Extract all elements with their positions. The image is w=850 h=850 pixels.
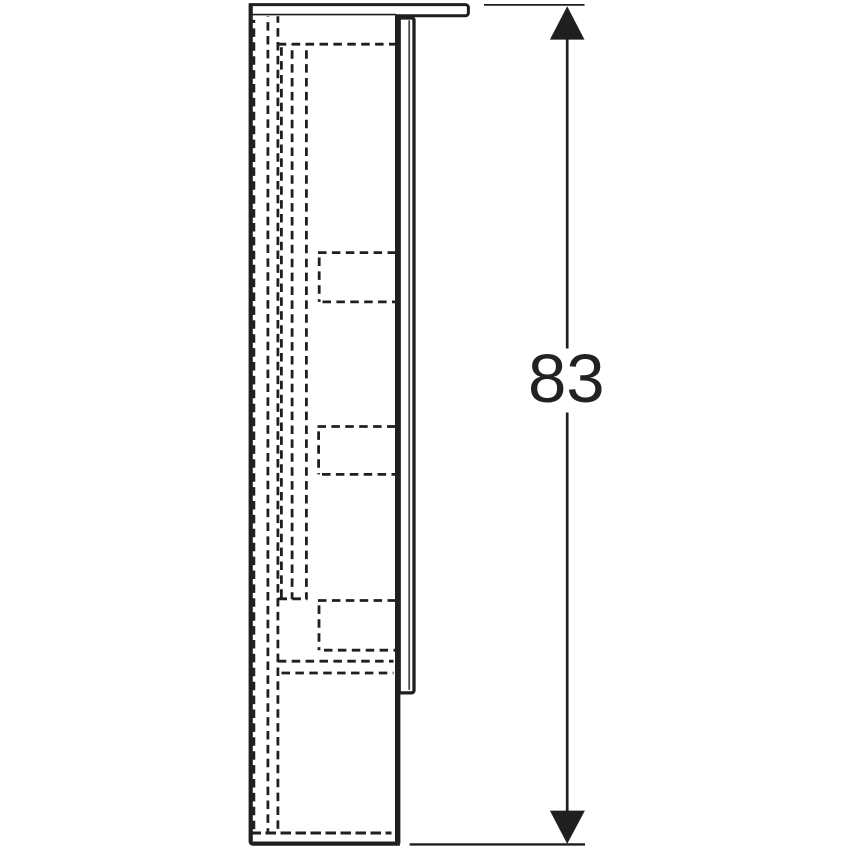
svg-text:83: 83 [528,340,604,417]
